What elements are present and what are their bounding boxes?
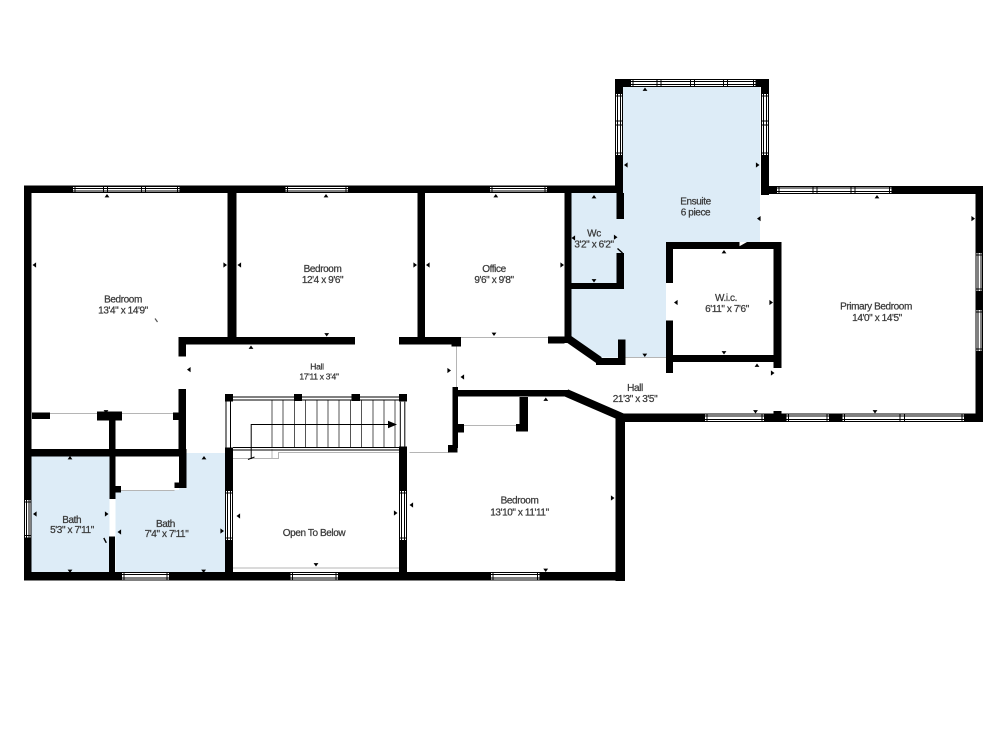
- svg-text:Hall: Hall: [627, 383, 643, 394]
- svg-text:14'0" x 14'5": 14'0" x 14'5": [852, 313, 902, 324]
- svg-text:21'3" x 3'5": 21'3" x 3'5": [613, 394, 658, 405]
- svg-text:17'11 x 3'4": 17'11 x 3'4": [299, 372, 339, 382]
- svg-text:Primary Bedroom: Primary Bedroom: [840, 302, 912, 313]
- svg-text:3'2" x 6'2": 3'2" x 6'2": [574, 240, 614, 251]
- svg-text:12'4 x 9'6": 12'4 x 9'6": [302, 275, 344, 286]
- svg-text:5'3" x 7'11": 5'3" x 7'11": [50, 525, 95, 536]
- svg-text:13'4" x 14'9": 13'4" x 14'9": [98, 306, 148, 317]
- svg-text:Office: Office: [482, 264, 506, 275]
- svg-text:9'6" x 9'8": 9'6" x 9'8": [474, 275, 514, 286]
- svg-text:W.i.c.: W.i.c.: [715, 293, 737, 304]
- svg-text:Ensuite: Ensuite: [680, 197, 711, 208]
- svg-text:7'4" x 7'11": 7'4" x 7'11": [145, 529, 190, 540]
- svg-text:Bedroom: Bedroom: [501, 496, 539, 507]
- svg-text:Bedroom: Bedroom: [104, 295, 142, 306]
- svg-text:6'11" x 7'6": 6'11" x 7'6": [705, 304, 750, 315]
- svg-text:Hall: Hall: [310, 362, 324, 372]
- svg-text:6 piece: 6 piece: [681, 208, 711, 219]
- svg-text:Bedroom: Bedroom: [304, 264, 342, 275]
- svg-text:Wc: Wc: [587, 229, 601, 240]
- svg-text:Open To Below: Open To Below: [283, 528, 347, 539]
- svg-text:13'10" x 11'11": 13'10" x 11'11": [490, 508, 549, 519]
